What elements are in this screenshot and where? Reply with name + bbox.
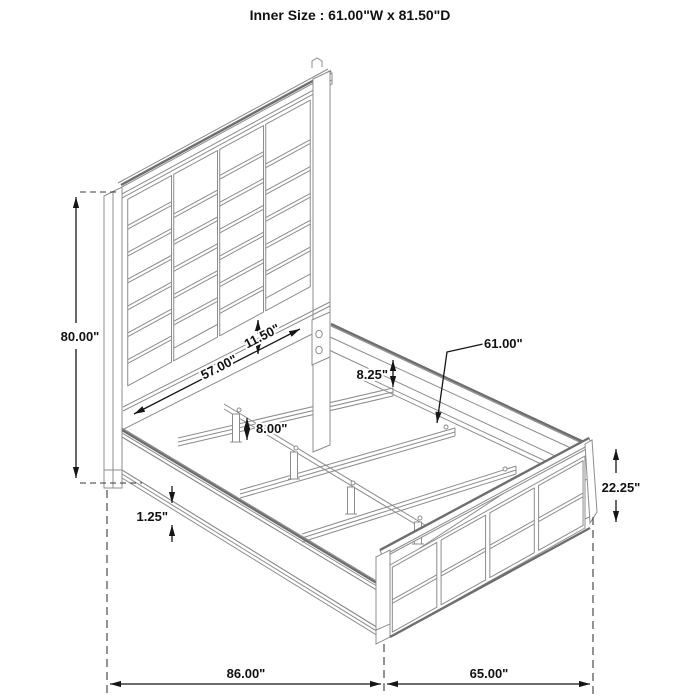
dim-label-headboard-height: 80.00" — [61, 329, 100, 344]
headboard-right-post — [313, 71, 330, 452]
headboard — [104, 58, 332, 488]
dim-label-rail-width: 57.00" — [198, 352, 239, 383]
dim-label-slat-length: 61.00" — [484, 336, 523, 351]
dim-overall-depth: 86.00" — [110, 666, 381, 684]
dim-label-overall-depth: 86.00" — [227, 666, 266, 681]
dim-label-panel-gap: 11.50" — [242, 321, 283, 352]
footboard-left-post — [376, 550, 390, 644]
bed-dimension-diagram: Inner Size : 61.00"W x 81.50"D — [0, 0, 700, 700]
diagram-canvas: Inner Size : 61.00"W x 81.50"D — [0, 0, 700, 700]
dim-footboard-height: 22.25" — [602, 449, 641, 522]
dim-overall-width: 65.00" — [387, 666, 590, 684]
right-side-rail — [329, 324, 588, 462]
dim-label-rail-lip: 1.25" — [137, 509, 168, 524]
headboard-top-tab — [312, 58, 322, 68]
headboard-left-post — [104, 187, 122, 488]
dim-label-leg-height: 8.00" — [256, 421, 287, 436]
footboard — [376, 438, 597, 644]
dim-label-rail-to-slat: 8.25" — [357, 367, 388, 382]
dim-label-overall-width: 65.00" — [470, 666, 509, 681]
dim-label-footboard-height: 22.25" — [602, 480, 641, 495]
diagram-title: Inner Size : 61.00"W x 81.50"D — [250, 7, 451, 23]
headboard-bracket — [312, 312, 330, 365]
